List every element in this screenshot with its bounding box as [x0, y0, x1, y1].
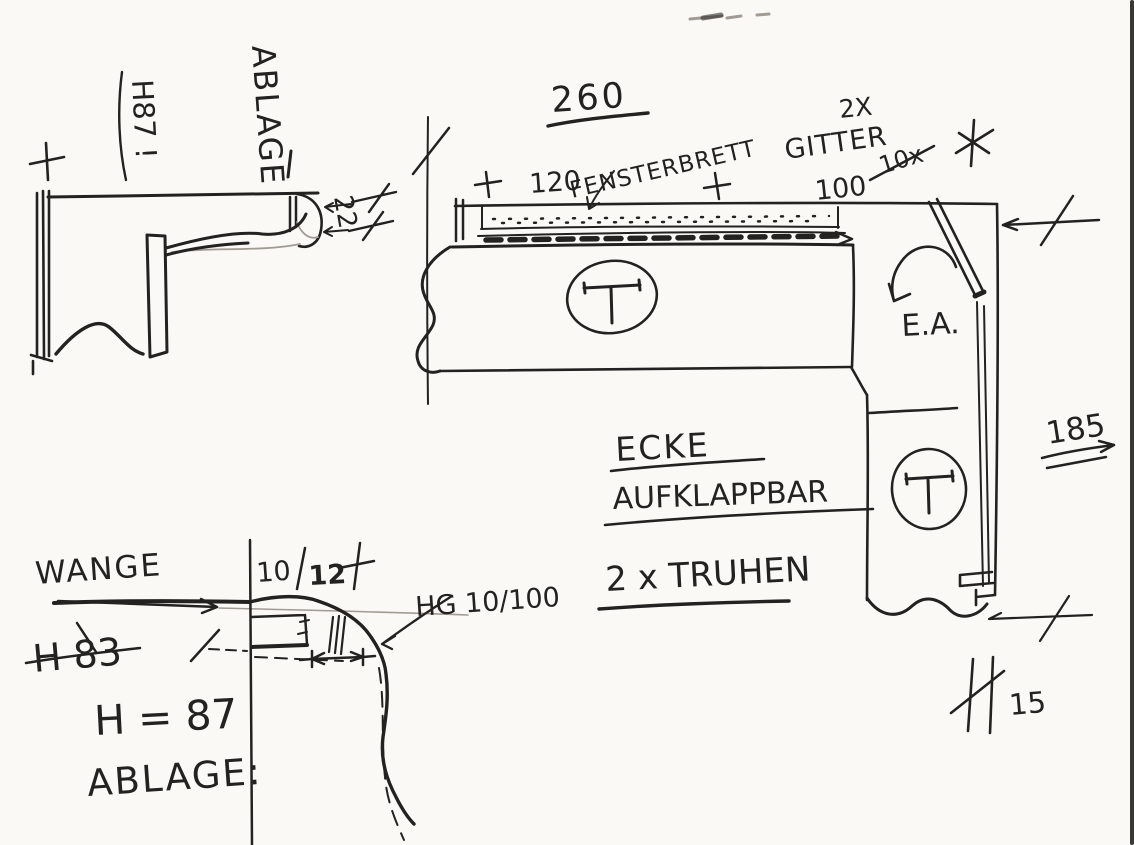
detail-dashed-outer [379, 668, 404, 840]
tenon-rect [252, 615, 307, 644]
right-bench-top-edge [869, 408, 957, 413]
chests-note: 2 x TRUHEN [604, 549, 811, 600]
plan-top-edge [455, 203, 997, 206]
star-mark [956, 120, 993, 166]
side-view-ablage: ABLAGE H87 ! 22 [30, 44, 396, 374]
right-dim-line [1003, 196, 1099, 245]
rail-hg-label: HG 10/100 [414, 582, 561, 623]
detail-top-line [54, 601, 250, 603]
rail-bracket [300, 649, 375, 667]
detail-view-wange: WANGE 10 12 HG 10/100 H 83 H = 87 ABLAGE… [26, 540, 561, 845]
grille-count-label: 2X [838, 92, 874, 124]
tenon-ticks [298, 620, 309, 634]
right-bench-left-edge [867, 395, 868, 600]
hatch-lines [329, 616, 345, 654]
shelf-top-line [48, 193, 318, 197]
ablage-label: ABLAGE [244, 44, 292, 187]
scanned-sketch-page: ABLAGE H87 ! 22 260 120 FENSTERBRETT 2X … [0, 0, 1134, 845]
grille-band-dashes [486, 236, 842, 240]
fensterbrett-label: FENSTERBRETT [568, 136, 759, 204]
wall-hatch-lines [31, 191, 52, 374]
chest-t-right-strokes [906, 471, 953, 513]
flap-swing-arrow [889, 247, 956, 301]
depth-185-label: 185 [1044, 407, 1108, 452]
break-wave [56, 324, 143, 354]
window-sill-band [481, 206, 839, 229]
chests-underline [599, 601, 789, 609]
dashed-left [209, 649, 247, 651]
wange-label: WANGE [34, 547, 163, 592]
chest-t-left-strokes [584, 280, 640, 323]
shelf-note-label: ABLAGE: [86, 750, 264, 805]
bench-left-break-wave [417, 247, 450, 372]
top-smudge-dark [703, 15, 721, 18]
detail-slash [191, 630, 219, 661]
shelf-leg [147, 235, 167, 357]
corner-flap-end-blob [975, 292, 984, 296]
grille-label: GITTER [783, 121, 890, 166]
axis-line [250, 540, 252, 845]
right-bench-break-wave [867, 598, 987, 616]
tenon-rect-bottom [252, 645, 307, 647]
window-sill-dots [493, 216, 829, 223]
bench-bottom-edge [440, 367, 851, 371]
right-inner-double-line [977, 302, 989, 586]
cross-mark [30, 143, 64, 180]
plan-view: 260 120 FENSTERBRETT 2X GITTER 10x 100 [413, 76, 1114, 733]
dim-12-label: 12 [308, 559, 347, 592]
offset-15-label: 15 [1008, 685, 1048, 722]
bench-right-edge [852, 246, 854, 367]
dim-10-label: 10 [255, 556, 291, 589]
overall-width-label: 260 [550, 76, 628, 121]
sketch-canvas: ABLAGE H87 ! 22 260 120 FENSTERBRETT 2X … [0, 0, 1134, 845]
corner-kink [851, 367, 867, 395]
left-wall-line [427, 117, 428, 404]
left-dim-slash [413, 128, 449, 174]
offset-dim-ticks [951, 657, 1004, 733]
height-underline [119, 72, 126, 180]
ecke-note-line2: AUFKLAPPBAR [612, 474, 829, 516]
h87-label: H87 ! [125, 79, 163, 160]
ea-label: E.A. [901, 306, 961, 344]
bench-top-edge [452, 244, 853, 247]
grille-size-label: 100 [813, 171, 868, 207]
dim-tick-1 [297, 548, 305, 589]
height-note-label: H = 87 [93, 690, 239, 745]
bottom-right-dim-line [989, 596, 1092, 641]
